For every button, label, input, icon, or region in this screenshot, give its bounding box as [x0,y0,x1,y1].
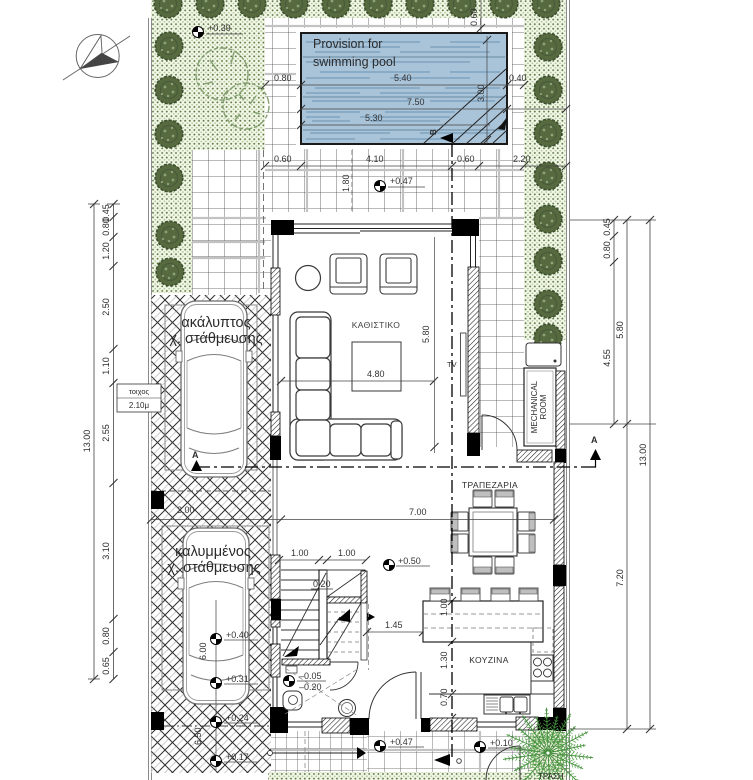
svg-text:0.60: 0.60 [457,154,475,164]
svg-text:+0.10: +0.10 [490,738,513,748]
svg-text:3.00: 3.00 [177,505,195,515]
svg-text:+0.40: +0.40 [226,630,249,640]
svg-text:+0.47: +0.47 [390,176,413,186]
svg-text:1.00: 1.00 [338,548,356,558]
svg-text:6.50: 6.50 [193,727,203,745]
svg-text:5.80: 5.80 [615,321,625,339]
svg-text:0.80: 0.80 [101,218,111,236]
svg-text:ΚΑΘΙΣΤΙΚΟ: ΚΑΘΙΣΤΙΚΟ [352,320,401,330]
svg-text:ΚΟΥΖΙΝΑ: ΚΟΥΖΙΝΑ [469,655,509,665]
svg-text:MECHANICAL: MECHANICAL [530,380,539,433]
svg-text:+0.39: +0.39 [208,23,231,33]
svg-text:+0.50: +0.50 [398,556,421,566]
svg-text:1.00: 1.00 [291,548,309,558]
svg-text:5.80: 5.80 [421,325,431,343]
svg-text:2.20: 2.20 [513,154,531,164]
svg-text:0.20: 0.20 [313,579,331,589]
svg-text:4.10: 4.10 [366,154,384,164]
svg-text:7.20: 7.20 [615,569,625,587]
svg-text:+0.24: +0.24 [226,713,249,723]
svg-text:0.45: 0.45 [602,218,612,236]
svg-text:ROOM: ROOM [539,394,548,419]
svg-text:7.00: 7.00 [409,507,427,517]
svg-text:swimming pool: swimming pool [313,55,396,69]
svg-text:A: A [591,435,598,445]
svg-text:B: B [429,129,438,135]
svg-text:χ. στάθμευσης: χ. στάθμευσης [167,560,260,576]
svg-text:χ. στάθμευσης: χ. στάθμευσης [169,331,262,347]
svg-text:1.30: 1.30 [439,651,449,669]
svg-text:13.00: 13.00 [638,444,648,467]
svg-text:2.50: 2.50 [101,298,111,316]
svg-text:3.00: 3.00 [476,84,486,102]
svg-text:0.40: 0.40 [509,73,527,83]
svg-text:2.10μ: 2.10μ [129,401,150,410]
svg-text:1.10: 1.10 [101,357,111,375]
svg-text:A: A [192,450,199,460]
svg-text:1.45: 1.45 [385,620,403,630]
svg-text:0.80: 0.80 [274,73,292,83]
svg-text:1.00: 1.00 [439,598,449,616]
svg-text:5.30: 5.30 [365,113,383,123]
svg-text:+0.31: +0.31 [226,674,249,684]
svg-text:0.80: 0.80 [602,241,612,259]
svg-text:ακάλυπτος: ακάλυπτος [181,315,250,331]
svg-text:2.55: 2.55 [101,424,111,442]
svg-text:4.55: 4.55 [602,349,612,367]
svg-text:7.50: 7.50 [407,97,425,107]
svg-text:0.80: 0.80 [101,627,111,645]
svg-text:6.00: 6.00 [198,642,208,660]
svg-text:+0.17: +0.17 [226,752,249,762]
svg-text:4.80: 4.80 [367,369,385,379]
svg-text:0.65: 0.65 [101,657,111,675]
svg-text:–0.05: –0.05 [299,671,322,681]
svg-text:13.00: 13.00 [82,430,92,453]
svg-text:5.40: 5.40 [394,73,412,83]
svg-text:+0.47: +0.47 [390,737,413,747]
svg-text:–0.20: –0.20 [299,682,322,692]
svg-text:3.10: 3.10 [101,542,111,560]
svg-text:Provision for: Provision for [313,37,382,51]
svg-text:0.60: 0.60 [469,8,479,26]
svg-text:1.20: 1.20 [101,242,111,260]
svg-text:0.70: 0.70 [439,688,449,706]
svg-text:0.60: 0.60 [274,154,292,164]
svg-text:1.80: 1.80 [341,174,351,192]
svg-text:ΤΡΑΠΕΖΑΡΙΑ: ΤΡΑΠΕΖΑΡΙΑ [462,480,518,490]
svg-text:καλυμμένος: καλυμμένος [175,544,251,560]
svg-text:τοιχος: τοιχος [129,387,150,396]
svg-text:ΤΡΑΣΗ: ΤΡΑΣΗ [538,772,564,780]
